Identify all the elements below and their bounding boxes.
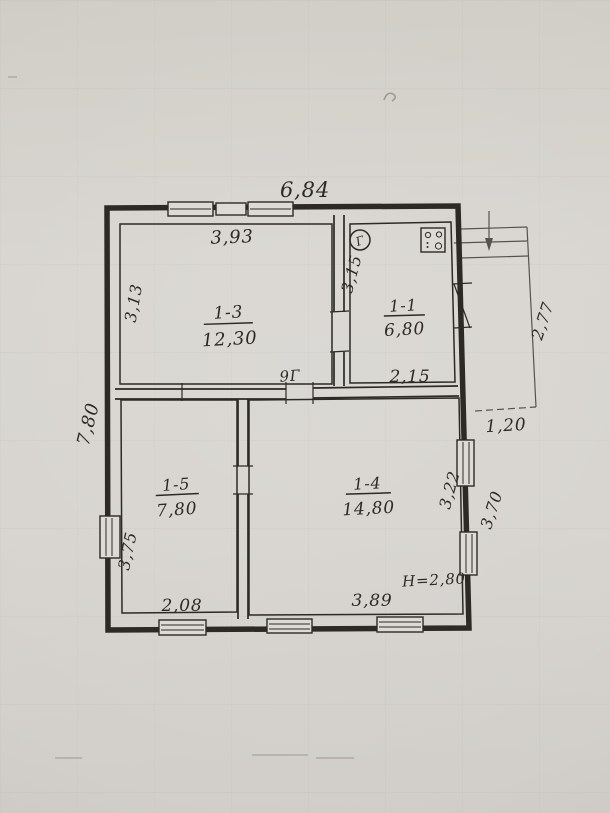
room-1-3-note: 9Г — [279, 366, 302, 385]
window-bottom-2 — [267, 619, 312, 633]
room-1-5-bottom-dim: 2,08 — [160, 596, 202, 616]
room-1-1-left-dim: 3,15 — [337, 253, 365, 295]
scan-artifacts — [8, 76, 395, 759]
room-area: 12,30 — [201, 328, 258, 352]
porch-step-line — [461, 227, 527, 229]
gas-stove-icon — [421, 228, 445, 252]
room-labels: 1-3 12,30 1-1 6,80 1-5 7,80 1-4 14,80 — [154, 295, 426, 522]
floor-plan-drawing: Г 6,84 7,80 3,93 3,13 9Г 3,15 2,15 3,75 … — [0, 0, 610, 813]
fixtures: Г — [350, 228, 445, 252]
burner-dot-icon — [427, 246, 429, 248]
paper-mark — [252, 754, 308, 756]
porch-width-dim: 1,20 — [485, 415, 527, 437]
porch-step-line — [461, 256, 528, 258]
door-jamb-tick — [452, 283, 472, 284]
room-area: 7,80 — [156, 499, 198, 522]
room-1-3-left-dim: 3,13 — [121, 282, 146, 324]
entrance-arrow-head-icon — [485, 238, 493, 251]
room-number: 1-3 — [213, 302, 244, 324]
room-1-4-right-dim: 3,22 — [435, 469, 463, 511]
wall-pier — [216, 203, 246, 215]
room-1-1-bottom-dim: 2,15 — [388, 367, 430, 387]
window-bottom-3 — [377, 617, 423, 632]
paper-mark — [55, 757, 82, 759]
dimension-labels: 6,84 7,80 3,93 3,13 9Г 3,15 2,15 3,75 2,… — [73, 178, 558, 616]
overall-width-label: 6,84 — [280, 178, 330, 202]
wall-1-3-1-1 — [334, 215, 344, 386]
room-1-4-label: 1-4 14,80 — [341, 473, 396, 521]
wall-middle — [115, 386, 459, 399]
gas-meter-letter: Г — [353, 233, 367, 249]
paper-mark — [316, 757, 354, 759]
door-jamb-tick — [330, 311, 349, 312]
room-1-3-label: 1-3 12,30 — [200, 302, 258, 352]
window-bottom-1 — [159, 620, 206, 635]
paper-mark — [8, 76, 17, 78]
porch-outline — [454, 211, 536, 411]
room-1-3-top-dim: 3,93 — [210, 226, 254, 248]
room-area: 14,80 — [342, 498, 396, 521]
porch-height-dim: 2,77 — [527, 299, 557, 343]
room-number: 1-5 — [161, 474, 190, 495]
outer-wall — [107, 206, 469, 630]
porch-wall-dim: 3,70 — [476, 488, 506, 531]
overall-depth-label: 7,80 — [73, 401, 104, 448]
scanned-floor-plan-page: Г 6,84 7,80 3,93 3,13 9Г 3,15 2,15 3,75 … — [0, 0, 610, 813]
porch-bottom-edge — [475, 407, 536, 411]
room-1-1-label: 1-1 6,80 — [382, 295, 426, 341]
room-1-5-label: 1-5 7,80 — [154, 474, 201, 522]
wall-1-5-1-4 — [238, 399, 248, 619]
room-outlines — [120, 222, 463, 615]
ink-smudge — [384, 93, 395, 101]
room-1-4-bottom-dim: 3,89 — [351, 591, 392, 611]
room-area: 6,80 — [384, 319, 426, 341]
door-jamb-tick — [330, 351, 349, 352]
room-number: 1-4 — [353, 473, 382, 493]
burner-dot-icon — [427, 242, 429, 244]
stove-body — [421, 228, 445, 252]
interior-walls — [115, 215, 459, 619]
room-1-4-height-note: Н=2,80 — [401, 569, 467, 590]
windows — [100, 202, 477, 635]
room-number: 1-1 — [389, 295, 418, 315]
